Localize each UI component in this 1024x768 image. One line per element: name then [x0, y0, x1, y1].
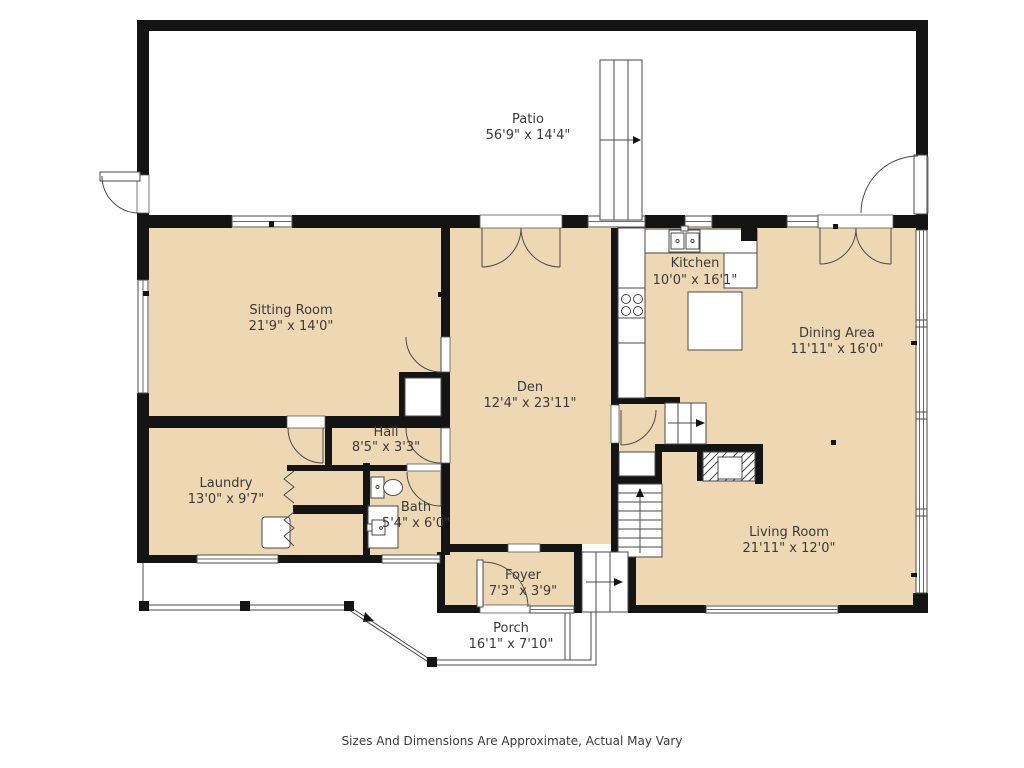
- porch-steps-rail: [565, 613, 570, 660]
- den-patio-door-opening: [480, 215, 562, 228]
- label-laundry-dims: 13'0" x 9'7": [188, 492, 264, 507]
- bath-door-opening: [407, 464, 441, 471]
- label-porch-dims: 16'1" x 7'10": [469, 637, 554, 652]
- front-door-leaf: [477, 560, 483, 607]
- label-living-room-dims: 21'11" x 12'0": [743, 541, 836, 556]
- label-sitting-room-dims: 21'9" x 14'0": [249, 319, 334, 334]
- label-bath-name: Bath: [401, 500, 431, 515]
- kitchen-island: [688, 292, 742, 350]
- label-bath-dims: 5'4" x 6'0": [382, 516, 450, 531]
- toilet-icon: [371, 477, 384, 498]
- label-patio-name: Patio: [512, 112, 544, 127]
- patio-left-door-swing: [102, 176, 139, 213]
- patio-right-door-leaf: [914, 155, 927, 214]
- label-foyer-dims: 7'3" x 3'9": [489, 584, 557, 599]
- railing-post: [139, 601, 149, 611]
- laundry-door-opening: [287, 416, 325, 428]
- sitting-door-opening: [441, 337, 450, 372]
- railing-post: [344, 601, 354, 611]
- label-dining-area-name: Dining Area: [799, 326, 875, 341]
- hall-door-opening: [441, 428, 450, 463]
- bath-fixtures: [367, 477, 403, 548]
- stair-closet: [619, 452, 655, 476]
- label-kitchen-name: Kitchen: [671, 256, 720, 271]
- dining-patio-door-opening: [818, 215, 893, 228]
- label-patio-dims: 56'9" x 14'4": [486, 128, 571, 143]
- walkway-arrow: [363, 612, 374, 622]
- sitting-closet: [405, 378, 441, 416]
- kitchen-corner-wall: [741, 228, 757, 241]
- den-foyer-opening: [508, 544, 540, 552]
- label-dining-area-dims: 11'11" x 16'0": [791, 342, 884, 357]
- den-stair-door-opening: [611, 405, 619, 443]
- railing-post: [240, 601, 250, 611]
- label-kitchen-dims: 10'0" x 16'1": [653, 273, 738, 288]
- disclaimer-text: Sizes And Dimensions Are Approximate, Ac…: [342, 734, 683, 748]
- front-door-opening: [480, 605, 530, 613]
- faucet-icon: [681, 226, 688, 231]
- label-hall-name: Hall: [374, 425, 399, 440]
- kitchen-counter-top: [645, 229, 757, 253]
- label-sitting-room-name: Sitting Room: [249, 303, 332, 318]
- label-den-name: Den: [517, 380, 543, 395]
- label-foyer-name: Foyer: [505, 568, 542, 583]
- patio-right-door-swing: [861, 156, 918, 213]
- floor-plan: Patio 56'9" x 14'4" Sitting Room 21'9" x…: [0, 0, 1024, 768]
- label-laundry-name: Laundry: [200, 476, 253, 491]
- label-den-dims: 12'4" x 23'11": [484, 396, 577, 411]
- label-hall-dims: 8'5" x 3'3": [352, 440, 420, 455]
- label-living-room-name: Living Room: [749, 525, 829, 540]
- fireplace-icon: [703, 452, 755, 481]
- railing-post: [427, 657, 437, 667]
- patio-left-door-leaf: [100, 172, 140, 181]
- label-porch-name: Porch: [493, 621, 529, 636]
